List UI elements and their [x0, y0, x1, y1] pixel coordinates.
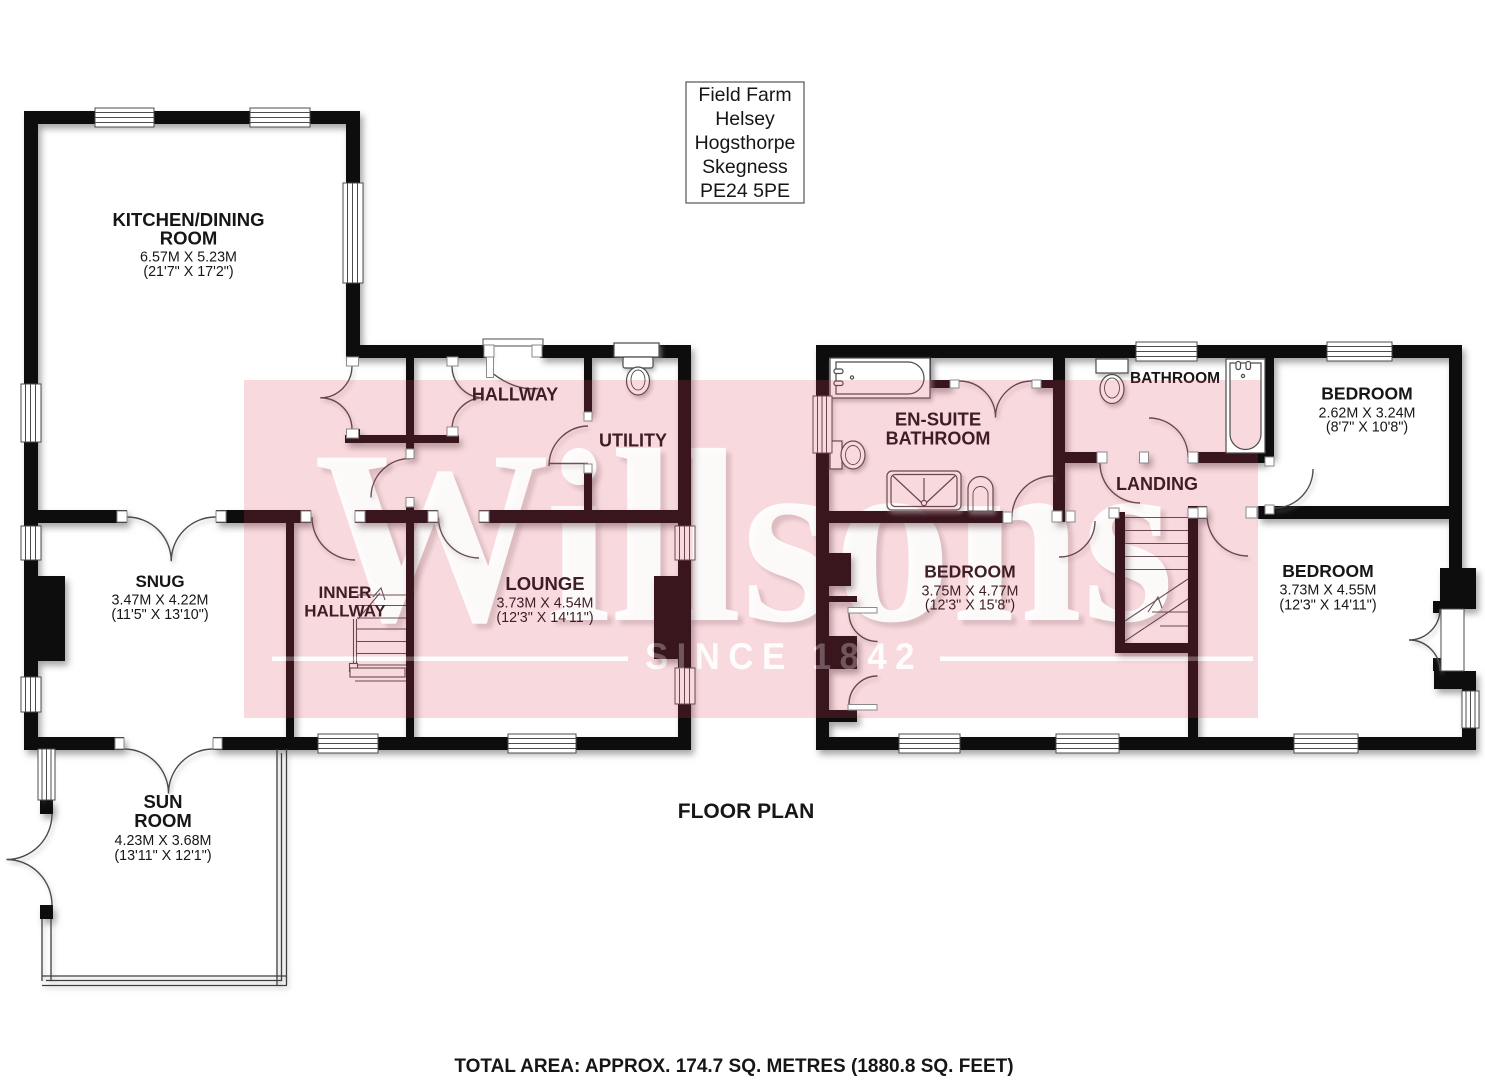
svg-text:ROOM: ROOM	[134, 810, 192, 831]
svg-text:Field Farm: Field Farm	[698, 84, 791, 106]
svg-text:(13'11" X 12'1"): (13'11" X 12'1")	[114, 848, 211, 864]
svg-text:(21'7" X 17'2"): (21'7" X 17'2")	[143, 264, 233, 280]
svg-text:(8'7" X 10'8"): (8'7" X 10'8")	[1326, 420, 1408, 436]
svg-text:BEDROOM: BEDROOM	[1282, 561, 1373, 581]
svg-text:SNUG: SNUG	[135, 572, 184, 591]
svg-text:SUN: SUN	[143, 791, 182, 812]
svg-text:PE24 5PE: PE24 5PE	[700, 180, 790, 202]
svg-text:Helsey: Helsey	[715, 108, 775, 130]
svg-text:TOTAL AREA: APPROX. 174.7 SQ.: TOTAL AREA: APPROX. 174.7 SQ. METRES (18…	[454, 1056, 1013, 1077]
svg-text:SINCE 1842: SINCE 1842	[645, 636, 923, 677]
svg-text:BEDROOM: BEDROOM	[1321, 384, 1412, 404]
svg-text:4.23M X 3.68M: 4.23M X 3.68M	[115, 833, 212, 849]
svg-text:ROOM: ROOM	[160, 228, 218, 249]
svg-text:Hogsthorpe: Hogsthorpe	[695, 132, 796, 154]
svg-text:(11'5" X 13'10"): (11'5" X 13'10")	[111, 607, 208, 623]
svg-text:FLOOR PLAN: FLOOR PLAN	[678, 800, 815, 823]
svg-text:3.73M X 4.55M: 3.73M X 4.55M	[1280, 583, 1377, 599]
svg-text:(12'3" X 14'11"): (12'3" X 14'11")	[1279, 597, 1376, 613]
svg-text:Skegness: Skegness	[702, 156, 788, 178]
